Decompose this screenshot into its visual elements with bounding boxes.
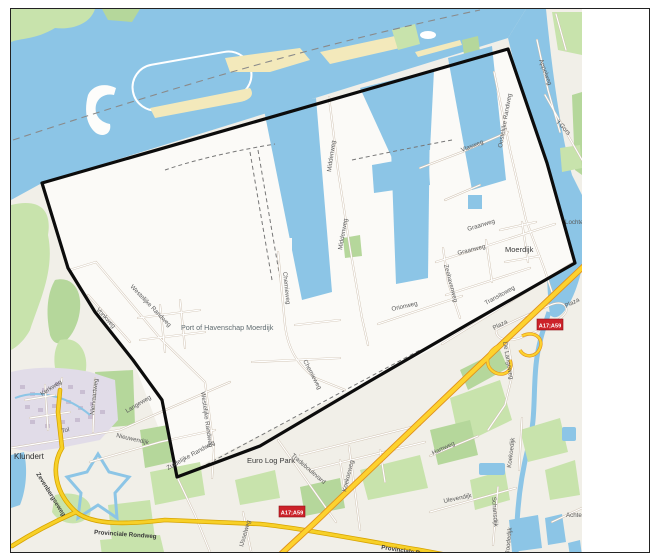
area-label-achterdijk: Achterdijk	[566, 512, 582, 519]
motorway-shield-2: A17;A59	[279, 506, 305, 517]
town-label-moerdijk: Moerdijk	[505, 245, 534, 254]
motorway-shield-1: A17;A59	[537, 319, 563, 330]
area-label-lochtenburg: Lochtenburg	[565, 219, 582, 226]
town-label-klundert: Klundert	[14, 452, 45, 461]
area-label-port: Port of Havenschap Moerdijk	[181, 323, 274, 332]
map-canvas[interactable]: Klundert Moerdijk Port of Havenschap Moe…	[11, 9, 582, 552]
map-frame: Klundert Moerdijk Port of Havenschap Moe…	[10, 8, 650, 553]
shield-text: A17;A59	[539, 324, 561, 330]
shield-text: A17;A59	[281, 511, 303, 517]
area-label-euro-log-park: Euro Log Park	[247, 456, 295, 465]
